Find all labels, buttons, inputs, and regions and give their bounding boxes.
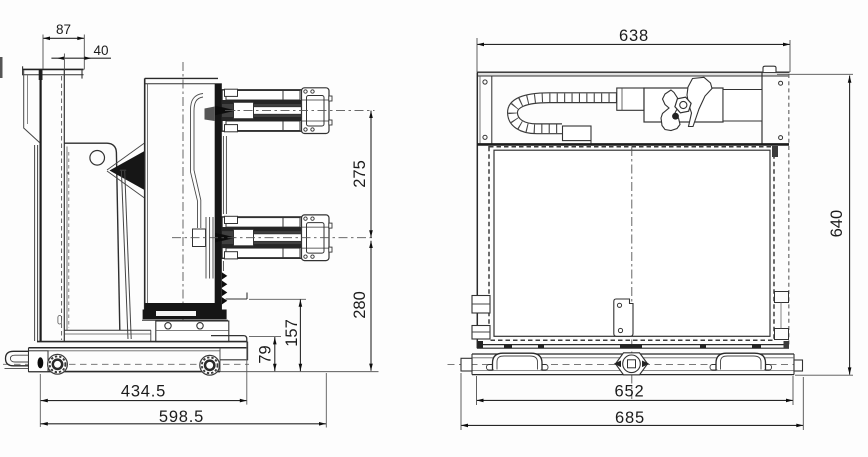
svg-text:280: 280 (351, 291, 369, 319)
svg-text:275: 275 (351, 160, 369, 188)
svg-text:685: 685 (615, 409, 645, 427)
svg-text:652: 652 (615, 383, 645, 401)
svg-text:157: 157 (283, 319, 301, 347)
svg-text:598.5: 598.5 (159, 408, 204, 426)
svg-text:87: 87 (56, 22, 71, 37)
svg-text:40: 40 (93, 43, 108, 58)
svg-text:434.5: 434.5 (121, 383, 166, 401)
svg-text:79: 79 (257, 345, 275, 363)
svg-text:638: 638 (619, 27, 649, 45)
svg-text:640: 640 (828, 210, 846, 238)
